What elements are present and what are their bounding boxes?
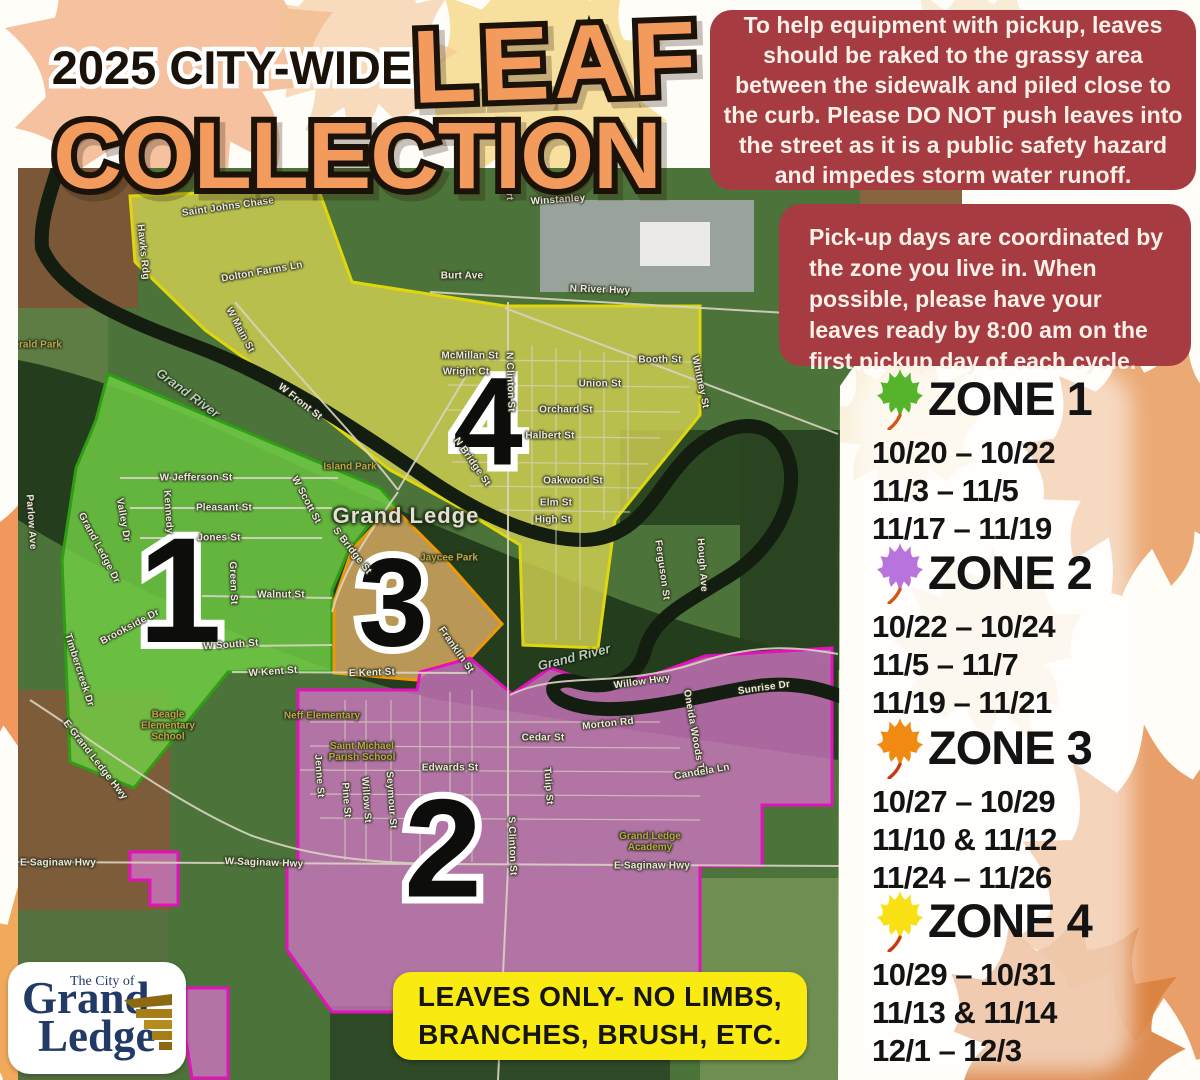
street-label: Burt Ave xyxy=(441,271,484,282)
park-label: Jaycee Park xyxy=(420,553,478,564)
street-label: Oakwood St xyxy=(543,476,603,487)
title-kicker: 2025 CITY-WIDE xyxy=(52,41,412,94)
zone-4-dates: 10/29 – 10/31 11/13 & 11/14 12/1 – 12/3 xyxy=(872,956,1172,1070)
park-label: Island Park xyxy=(323,462,376,473)
leaf-collection-flyer: 1 2 3 4 Saint Johns Chase Hawks Rdg Dolt… xyxy=(0,0,1200,1080)
maple-leaf-icon xyxy=(872,540,928,604)
street-label: Pine St xyxy=(339,782,352,818)
zone-label: ZONE 2 xyxy=(928,545,1092,600)
banner-line1: LEAVES ONLY- NO LIMBS, xyxy=(393,978,807,1016)
school-label: Saint Michael Parish School xyxy=(320,741,404,763)
zone-3-header: ZONE 3 xyxy=(872,715,1172,779)
street-label: N River Hwy xyxy=(570,283,631,296)
zone-2-area-south xyxy=(186,988,228,1078)
maple-leaf-icon xyxy=(872,888,928,952)
school-label: Neff Elementary xyxy=(284,711,360,722)
zone-3-schedule: ZONE 3 10/27 – 10/29 11/10 & 11/12 11/24… xyxy=(872,715,1172,897)
street-label: E Saginaw Hwy xyxy=(20,858,96,869)
street-label: Union St xyxy=(579,379,622,390)
street-label: High St xyxy=(535,515,571,526)
date-range: 12/1 – 12/3 xyxy=(872,1032,1172,1070)
zone-1-dates: 10/20 – 10/22 11/3 – 11/5 11/17 – 11/19 xyxy=(872,434,1172,548)
date-range: 10/27 – 10/29 xyxy=(872,783,1172,821)
street-label: Halbert St xyxy=(525,431,574,442)
street-label: Booth St xyxy=(638,355,681,366)
street-label: Elm St xyxy=(540,498,572,509)
maple-leaf-icon xyxy=(872,366,928,430)
zone-2-dates: 10/22 – 10/24 11/5 – 11/7 11/19 – 11/21 xyxy=(872,608,1172,722)
street-label: W Jefferson St xyxy=(160,473,233,484)
street-label: E Saginaw Hwy xyxy=(614,861,690,872)
maple-leaf-icon xyxy=(872,715,928,779)
pickup-instructions-notice: To help equipment with pickup, leaves sh… xyxy=(710,10,1196,190)
zone-4-header: ZONE 4 xyxy=(872,888,1172,952)
date-range: 10/20 – 10/22 xyxy=(872,434,1172,472)
city-of-grand-ledge-logo: The City of Grand Ledge xyxy=(8,962,186,1074)
street-label: S Clinton St xyxy=(505,816,518,875)
zone-2-number: 2 xyxy=(404,770,482,927)
street-label: McMillan St xyxy=(441,351,498,362)
leaf-stem xyxy=(889,937,900,951)
title-word2: COLLECTION xyxy=(53,103,660,209)
zone-label: ZONE 4 xyxy=(928,893,1092,948)
zone-coordination-notice: Pick-up days are coordinated by the zone… xyxy=(779,204,1191,366)
date-range: 11/10 & 11/12 xyxy=(872,821,1172,859)
zone-1-schedule: ZONE 1 10/20 – 10/22 11/3 – 11/5 11/17 –… xyxy=(872,366,1172,548)
date-range: 11/3 – 11/5 xyxy=(872,472,1172,510)
zone-2-schedule: ZONE 2 10/22 – 10/24 11/5 – 11/7 11/19 –… xyxy=(872,540,1172,722)
leaf-stem xyxy=(889,589,900,603)
street-label: Pleasant St xyxy=(196,503,252,514)
street-label: Jones St xyxy=(197,533,240,544)
street-label: Orchard St xyxy=(539,405,593,416)
street-label: Cedar St xyxy=(522,733,565,744)
street-label: Wright Ct xyxy=(443,367,490,378)
leaf-stem xyxy=(889,764,900,778)
leaves-only-banner: LEAVES ONLY- NO LIMBS, BRANCHES, BRUSH, … xyxy=(393,972,807,1060)
zone-coordination-text: Pick-up days are coordinated by the zone… xyxy=(809,224,1163,374)
school-label: Beagle Elementary School xyxy=(126,710,210,743)
date-range: 11/5 – 11/7 xyxy=(872,646,1172,684)
street-label: N Clinton St xyxy=(503,352,516,412)
school-label: Grand Ledge Academy xyxy=(608,831,692,853)
zone-1-header: ZONE 1 xyxy=(872,366,1172,430)
date-range: 11/13 & 11/14 xyxy=(872,994,1172,1032)
banner-line2: BRANCHES, BRUSH, ETC. xyxy=(393,1016,807,1054)
street-label: Walnut St xyxy=(257,590,305,601)
date-range: 10/22 – 10/24 xyxy=(872,608,1172,646)
street-label: Green St xyxy=(227,561,240,605)
leaf-stem xyxy=(889,415,900,429)
date-range: 10/29 – 10/31 xyxy=(872,956,1172,994)
zone-3-dates: 10/27 – 10/29 11/10 & 11/12 11/24 – 11/2… xyxy=(872,783,1172,897)
zone-3-number: 3 xyxy=(358,534,428,673)
zone-label: ZONE 1 xyxy=(928,371,1092,426)
zone-4-schedule: ZONE 4 10/29 – 10/31 11/13 & 11/14 12/1 … xyxy=(872,888,1172,1070)
street-label: Edwards St xyxy=(422,763,478,774)
ledge-rock-icon xyxy=(122,994,176,1052)
pickup-instructions-text: To help equipment with pickup, leaves sh… xyxy=(722,10,1184,190)
street-label: E Kent St xyxy=(349,667,396,680)
zone-label: ZONE 3 xyxy=(928,720,1092,775)
city-name-label: Grand Ledge xyxy=(333,503,480,529)
zone-2-header: ZONE 2 xyxy=(872,540,1172,604)
